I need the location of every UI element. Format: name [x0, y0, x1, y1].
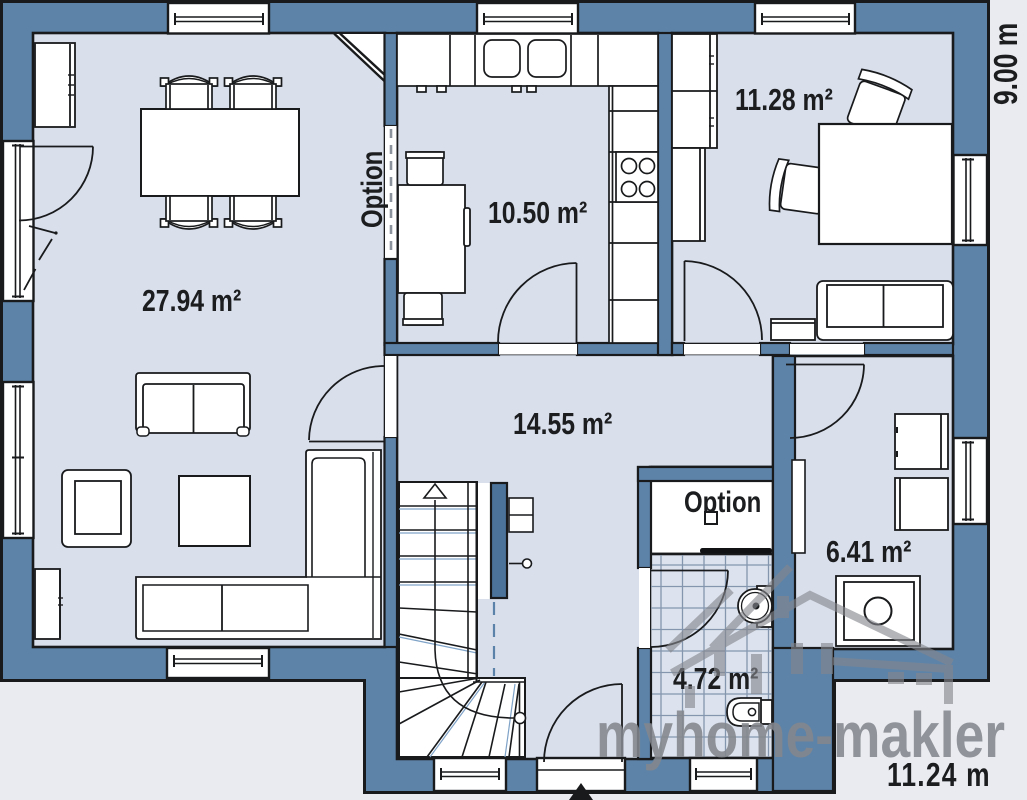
- svg-text:6.41 m²: 6.41 m²: [826, 534, 911, 568]
- svg-text:10.50 m²: 10.50 m²: [488, 195, 587, 229]
- svg-text:myhome-makler: myhome-makler: [596, 699, 1005, 771]
- svg-text:14.55 m²: 14.55 m²: [513, 406, 612, 440]
- svg-text:Option: Option: [354, 151, 388, 228]
- svg-text:11.28 m²: 11.28 m²: [735, 82, 833, 116]
- svg-text:27.94 m²: 27.94 m²: [142, 283, 241, 317]
- svg-text:9.00 m: 9.00 m: [988, 23, 1024, 105]
- svg-text:Option: Option: [684, 484, 761, 518]
